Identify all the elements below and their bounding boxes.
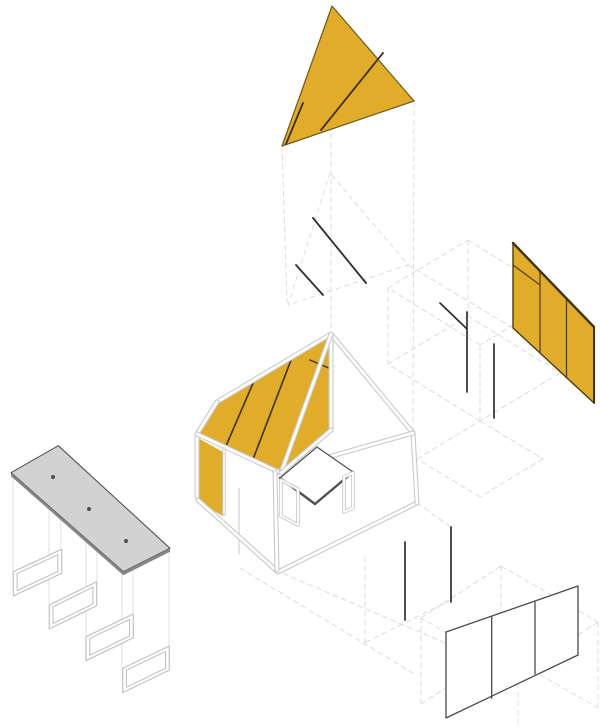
ghost-roof-seam-2 (296, 265, 323, 295)
ghost-link-rail (417, 503, 451, 527)
yellow-wall-panel (513, 243, 594, 403)
frame-south-post-core (275, 472, 277, 570)
ghost-edge (417, 421, 480, 459)
roof-panel (282, 6, 414, 146)
wall-panel-right (513, 243, 594, 403)
ghost-roof-link (408, 265, 513, 328)
ghost-edge (417, 459, 480, 497)
table-leg-right (344, 473, 353, 512)
ghost-roof-outline (288, 173, 408, 305)
wall-panel-bottom (446, 586, 578, 718)
cabin-frame (197, 334, 417, 572)
white-wall-panel (446, 586, 578, 718)
exploded-axonometric-diagram: Exploded axonometric diagram of a gabled… (0, 0, 600, 728)
proj-line-left (282, 146, 287, 303)
ghost-edge (480, 459, 543, 497)
ghost-edge (480, 373, 560, 421)
frame-apex-right-core (331, 334, 413, 433)
frame-sw-floor-rail-core (198, 500, 278, 572)
roof-panel-top (282, 6, 414, 146)
diagram-canvas: Exploded axonometric diagram of a gabled… (0, 0, 600, 728)
plank-fixing-dot (87, 507, 91, 511)
ghost-edge (421, 566, 501, 618)
table-assembly-left (11, 446, 170, 693)
ghost-link-long-2 (240, 568, 416, 675)
plank-fixing-dot (51, 475, 55, 479)
ghost-roof-seam-1 (313, 218, 366, 283)
proj-line-right (413, 102, 414, 432)
ghost-link-diag (366, 600, 451, 642)
ghost-edge (388, 316, 468, 364)
table-leg-left-core (281, 480, 298, 525)
frame-east-post-core (413, 433, 417, 503)
plank-fixing-dot (124, 539, 128, 543)
ghost-edge (388, 240, 468, 288)
ghost-edge (480, 421, 543, 459)
ghost-roof-triangle (288, 173, 513, 328)
